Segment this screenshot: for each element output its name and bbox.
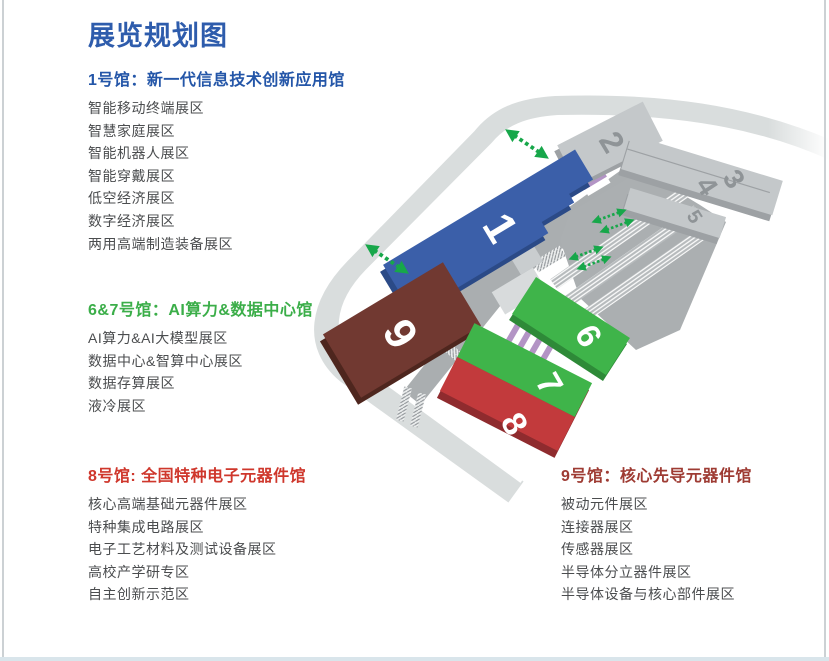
- zone-list-item: 半导体设备与核心部件展区: [561, 583, 829, 606]
- zone-list-item: 连接器展区: [561, 516, 829, 539]
- zone-list-item: 两用高端制造装备展区: [88, 233, 418, 256]
- hall-5-building: [621, 188, 726, 244]
- zone-list-item: 自主创新示范区: [88, 583, 418, 606]
- road-fade: [768, 90, 829, 195]
- zone-list-item: 液冷展区: [88, 395, 418, 418]
- zone-list-item: 智慧家庭展区: [88, 120, 418, 143]
- walkway-lanes: [550, 188, 713, 326]
- hall-7-label: 7: [528, 366, 570, 401]
- exhibition-plan-page: 展览规划图: [0, 0, 829, 661]
- central-road: [408, 168, 650, 340]
- zone-list-item: 核心高端基础元器件展区: [88, 493, 418, 516]
- page-bottom-bar: [0, 657, 829, 661]
- zone-list-item: 传感器展区: [561, 538, 829, 561]
- service-building: [482, 246, 556, 315]
- hall-8-legend: 8号馆: 全国特种电子元器件馆 核心高端基础元器件展区特种集成电路展区电子工艺材…: [88, 462, 418, 606]
- walkway-connector-6-7: [502, 319, 558, 364]
- hall-1-legend-header: 1号馆：新一代信息技术创新应用馆: [88, 66, 418, 90]
- hall-6-7-legend: 6&7号馆：AI算力&数据中心馆 AI算力&AI大模型展区数据中心&智算中心展区…: [88, 296, 418, 417]
- zone-list-item: 被动元件展区: [561, 493, 829, 516]
- hall-9-legend: 9号馆：核心先导元器件馆 被动元件展区连接器展区传感器展区半导体分立器件展区半导…: [561, 462, 829, 606]
- zone-list-item: 半导体分立器件展区: [561, 561, 829, 584]
- zone-list-item: 智能机器人展区: [88, 142, 418, 165]
- north-road: [632, 148, 658, 242]
- entrance-arrow-icon: [501, 124, 552, 164]
- hall-1-zone-list: 智能移动终端展区智慧家庭展区智能机器人展区智能穿戴展区低空经济展区数字经济展区两…: [88, 97, 418, 255]
- zone-list-item: 低空经济展区: [88, 187, 418, 210]
- zone-list-item: 数据中心&智算中心展区: [88, 350, 418, 373]
- hall-2-building: [554, 102, 663, 191]
- zone-list-item: 高校产学研专区: [88, 561, 418, 584]
- hall-3-label: 3: [717, 164, 751, 194]
- hall-3-4-building: [618, 135, 783, 222]
- hall-8-label: 8: [493, 406, 535, 441]
- entrance-arrow-pair-icon: [590, 204, 636, 238]
- walkway-connector-1-2: [561, 138, 610, 196]
- zone-list-item: 智能穿戴展区: [88, 165, 418, 188]
- hall-9-legend-header: 9号馆：核心先导元器件馆: [561, 462, 829, 486]
- zone-list-item: 数据存算展区: [88, 372, 418, 395]
- hall-8-zone-list: 核心高端基础元器件展区特种集成电路展区电子工艺材料及测试设备展区高校产学研专区自…: [88, 493, 418, 606]
- entrance-arrow-pair-icon: [567, 241, 613, 275]
- hall-7-8-building: [437, 323, 592, 458]
- hall-2-label: 2: [592, 125, 632, 159]
- hall-1-legend: 1号馆：新一代信息技术创新应用馆 智能移动终端展区智慧家庭展区智能机器人展区智能…: [88, 66, 418, 255]
- page-title: 展览规划图: [88, 14, 228, 53]
- zone-list-item: 数字经济展区: [88, 210, 418, 233]
- zone-list-item: AI算力&AI大模型展区: [88, 327, 418, 350]
- hall-6-label: 6: [567, 318, 609, 353]
- zone-list-item: 智能移动终端展区: [88, 97, 418, 120]
- zone-list-item: 电子工艺材料及测试设备展区: [88, 538, 418, 561]
- plaza: [560, 170, 726, 350]
- hall-6-7-zone-list: AI算力&AI大模型展区数据中心&智算中心展区数据存算展区液冷展区: [88, 327, 418, 417]
- hall-6-building: [509, 277, 630, 381]
- hall-6-7-legend-header: 6&7号馆：AI算力&数据中心馆: [88, 296, 418, 320]
- hall-1-label: 1: [473, 205, 528, 251]
- page-right-border: [824, 0, 826, 661]
- page-left-border: [2, 0, 4, 661]
- hall-9-zone-list: 被动元件展区连接器展区传感器展区半导体分立器件展区半导体设备与核心部件展区: [561, 493, 829, 606]
- hall-4-label: 4: [690, 171, 725, 201]
- zone-list-item: 特种集成电路展区: [88, 516, 418, 539]
- hall-8-legend-header: 8号馆: 全国特种电子元器件馆: [88, 462, 418, 486]
- hatched-ramps: [396, 246, 566, 428]
- south-road: [412, 270, 515, 398]
- hall-5-label: 5: [682, 206, 707, 227]
- internal-roads: [408, 148, 726, 398]
